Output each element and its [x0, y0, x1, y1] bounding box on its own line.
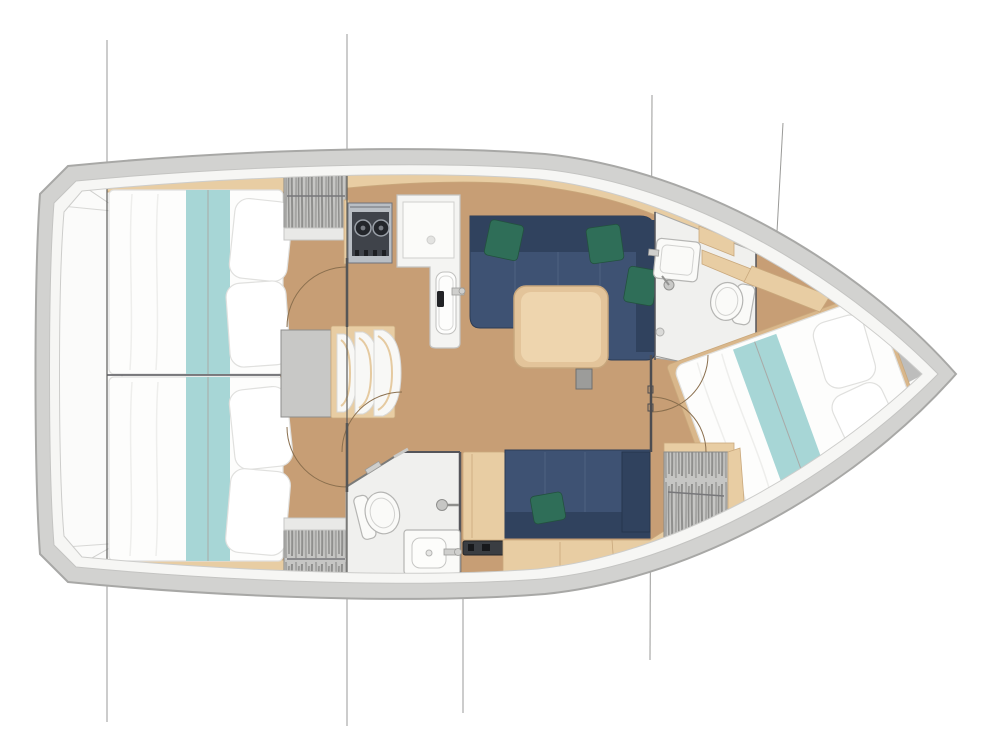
settee-corner-back	[622, 452, 650, 532]
table-pedestal	[576, 369, 592, 389]
companionway	[281, 326, 401, 418]
aft-head-basin	[404, 530, 462, 574]
floorplan-canvas	[0, 0, 1000, 750]
stove	[348, 203, 392, 263]
shower-drain	[656, 328, 664, 336]
aft-cabin-port-bed	[109, 190, 294, 374]
settee-green-cushion	[530, 491, 566, 524]
saloon-table	[514, 286, 608, 368]
green-cushion-1	[484, 219, 525, 261]
boat-floorplan: Sailboat interior floor plan	[0, 0, 1000, 750]
settee-grill-panel	[463, 541, 507, 555]
aft-cabin-starboard-bed	[109, 377, 294, 561]
green-cushion-2	[586, 224, 625, 264]
engine-hatch-landing	[281, 330, 331, 417]
settee-side-cabinet	[463, 452, 505, 540]
forward-head-faucet	[648, 249, 659, 256]
aft-starboard-pillow-2	[224, 468, 291, 557]
